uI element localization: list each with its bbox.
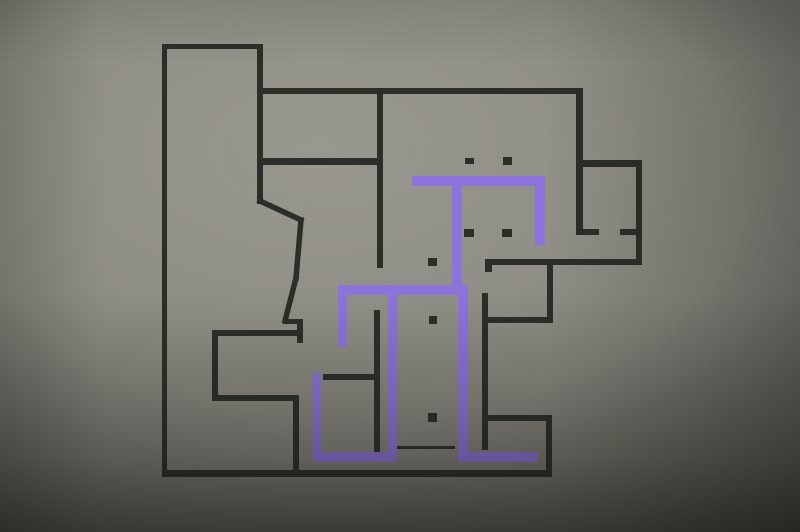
bottomleft-left-v (212, 330, 218, 401)
horizontal-415 (485, 415, 552, 421)
stub-vertical (547, 259, 553, 323)
route-u-left-arm (313, 373, 321, 462)
route-right-corridor (458, 294, 468, 462)
notch-diagonal-lower (285, 278, 296, 321)
bottomleft-right-v (293, 395, 299, 472)
long-horizontal (485, 259, 642, 265)
right-inner-vertical (482, 293, 488, 450)
bottom-wall (162, 470, 552, 477)
corridor-dot-bottom (428, 413, 437, 422)
dash-row2-right (502, 229, 512, 237)
threshold-line (397, 446, 455, 449)
dash-row1-left (465, 158, 474, 164)
route-bottom-right-h (458, 452, 538, 462)
floor-plan (0, 0, 800, 532)
notch-vertical-leaning (296, 220, 301, 278)
notch-diagonal-upper (260, 201, 301, 220)
tower-top (162, 44, 263, 49)
tower-right-wall (257, 44, 263, 204)
route-top-stem (452, 176, 462, 294)
route-u-right-arm (388, 294, 397, 462)
topright-room-right (636, 160, 642, 265)
route-mid-horizontal (338, 285, 468, 295)
dash-row2-left (464, 229, 474, 237)
door-wall-left-seg (578, 229, 599, 235)
route-u-bottom (313, 452, 397, 462)
bottomright-vertical (546, 415, 552, 473)
corridor-dot-middle (429, 316, 437, 324)
bottomleft-top-h (212, 330, 302, 336)
wall-photo (0, 0, 800, 532)
route-top-right-drop (535, 176, 545, 245)
route-left-stub (338, 285, 347, 347)
corridor-dot-top (428, 258, 437, 266)
topright-room-top (576, 160, 642, 167)
route-top-bar (412, 176, 545, 186)
center-vertical-upper (377, 88, 383, 268)
bottomleft-bottom-h (212, 395, 299, 401)
mid-left-horizontal (257, 158, 383, 165)
door-wall-right-seg (620, 229, 638, 235)
horizontal-317 (485, 317, 553, 323)
center-vertical-lower (374, 310, 380, 452)
dash-row1-right (503, 157, 512, 165)
walls-layer (162, 44, 642, 477)
long-horizontal-tick (485, 259, 492, 272)
top-main-wall (257, 88, 582, 94)
horizontal-374 (323, 374, 380, 380)
outer-left-wall (162, 44, 167, 477)
